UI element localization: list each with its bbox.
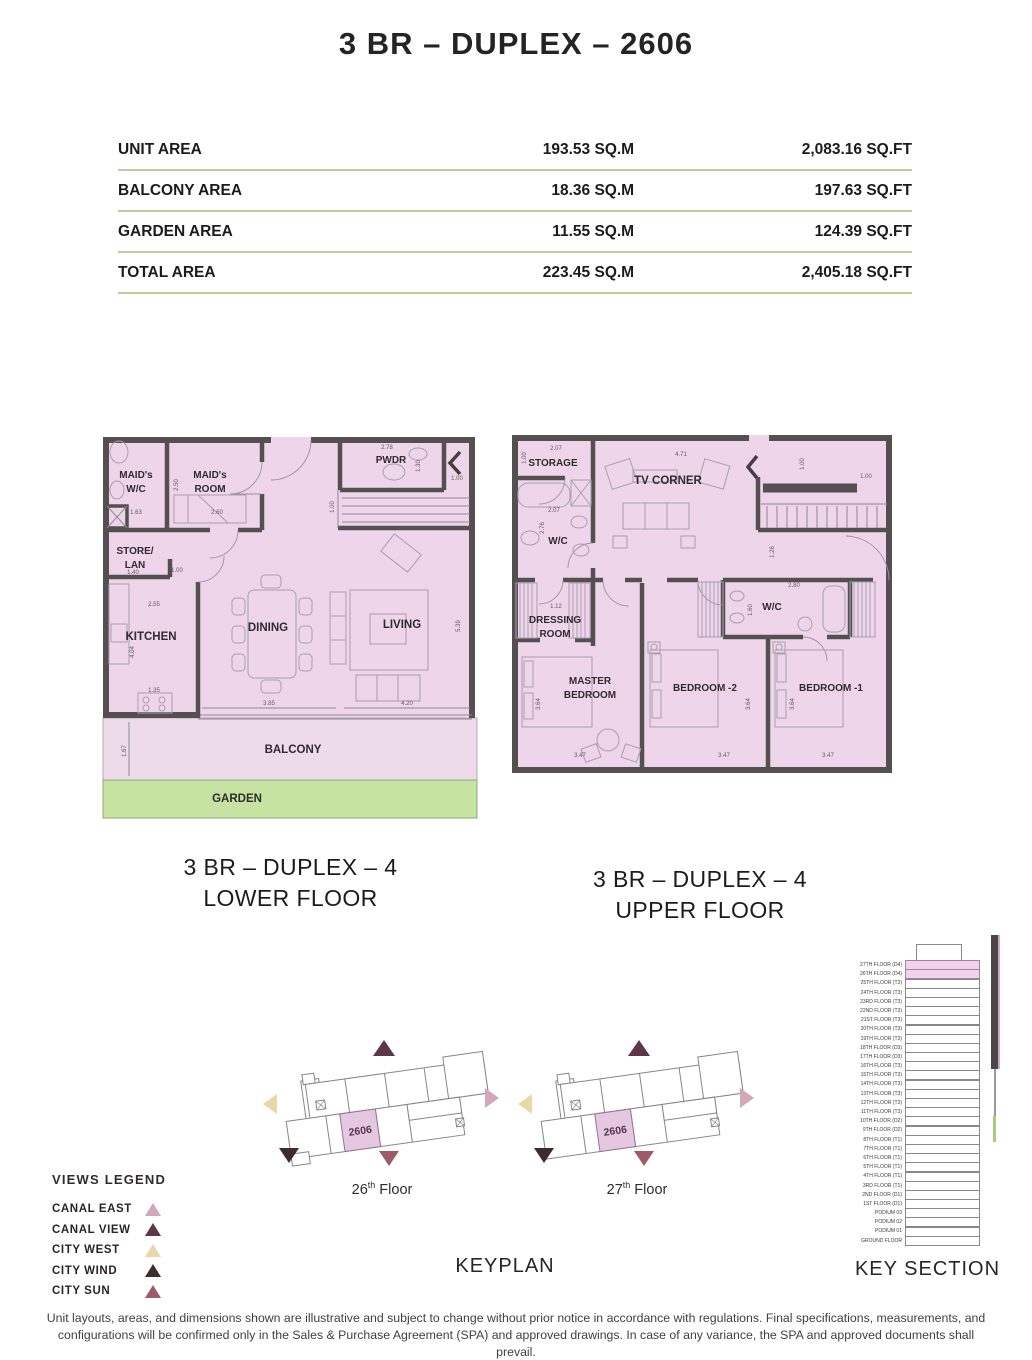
legend-item: CITY WIND [52,1261,242,1282]
table-row: GARDEN AREA 11.55 SQ.M 124.39 SQ.FT [118,212,912,253]
area-label: UNIT AREA [118,141,420,159]
view-direction-triangle [485,1088,499,1108]
area-label: GARDEN AREA [118,223,420,241]
keyplan-26th-floor: 2606 [257,1036,507,1176]
svg-text:STORAGE: STORAGE [528,458,578,469]
svg-text:1.00: 1.00 [171,568,183,574]
svg-text:3.64: 3.64 [746,698,752,710]
tower-section-bar [991,935,1000,1069]
svg-text:W/C: W/C [548,536,567,547]
svg-text:3.47: 3.47 [718,753,730,759]
key-section-roof [916,944,962,961]
table-row: UNIT AREA 193.53 SQ.M 2,083.16 SQ.FT [118,130,912,171]
svg-text:BEDROOM -1: BEDROOM -1 [799,683,863,694]
lower-plan-caption: 3 BR – DUPLEX – 4 LOWER FLOOR [98,852,483,914]
upper-plan-caption: 3 BR – DUPLEX – 4 UPPER FLOOR [505,864,895,926]
area-table: UNIT AREA 193.53 SQ.M 2,083.16 SQ.FT BAL… [118,130,912,294]
svg-text:1.40: 1.40 [127,570,139,576]
svg-text:1.12: 1.12 [550,604,562,610]
svg-text:1.67: 1.67 [122,745,128,757]
upper-floor-plan: STORAGE TV CORNER W/C DRESSING ROOM MAST… [505,428,895,778]
legend-item: CANAL VIEW [52,1220,242,1241]
svg-text:1.00: 1.00 [451,476,463,482]
svg-text:MASTER: MASTER [569,676,612,687]
svg-text:1.00: 1.00 [860,474,872,480]
views-legend: VIEWS LEGEND CANAL EAST CANAL VIEW CITY … [52,1172,242,1302]
keyplan-27th-caption: 27th Floor [512,1180,762,1198]
svg-text:1.30: 1.30 [416,460,422,472]
lower-floor-plan: MAID's W/C MAID's ROOM PWDR STORE/ LAN K… [98,432,483,822]
svg-text:3.85: 3.85 [263,701,275,707]
svg-text:3.47: 3.47 [822,753,834,759]
svg-text:DINING: DINING [248,622,288,634]
svg-text:1.00: 1.00 [800,458,806,470]
area-sqft: 2,405.18 SQ.FT [634,264,912,282]
svg-text:GARDEN: GARDEN [212,793,262,805]
area-label: TOTAL AREA [118,264,420,282]
view-direction-triangle [379,1151,399,1166]
legend-item: CITY WEST [52,1240,242,1261]
svg-text:3.64: 3.64 [790,698,796,710]
svg-text:BALCONY: BALCONY [265,744,322,756]
svg-text:1.35: 1.35 [148,688,160,694]
disclaimer-text: Unit layouts, areas, and dimensions show… [46,1310,986,1360]
svg-text:3.64: 3.64 [536,698,542,710]
view-direction-triangle [628,1040,650,1056]
table-row: BALCONY AREA 18.36 SQ.M 197.63 SQ.FT [118,171,912,212]
svg-text:2.60: 2.60 [211,510,223,516]
svg-text:W/C: W/C [762,602,781,613]
floor-plan-sheet: 3 BR – DUPLEX – 2606 UNIT AREA 193.53 SQ… [0,0,1032,1360]
key-section-diagram: 27TH FLOOR (D4) 26TH FLOOR (D4) 25TH FLO… [845,944,980,1246]
svg-text:TV CORNER: TV CORNER [634,475,702,487]
svg-text:2.07: 2.07 [548,508,560,514]
svg-text:1.60: 1.60 [748,604,754,616]
svg-text:2.76: 2.76 [540,522,546,534]
area-sqm: 223.45 SQ.M [420,264,634,282]
view-direction-triangle [518,1094,532,1114]
area-sqft: 197.63 SQ.FT [634,182,912,200]
svg-text:DRESSING: DRESSING [529,615,581,626]
tower-section-garden-level [993,1116,996,1142]
area-sqm: 18.36 SQ.M [420,182,634,200]
svg-text:4.71: 4.71 [675,452,687,458]
svg-text:MAID's: MAID's [119,470,153,481]
triangle-swatch-icon [144,1243,162,1258]
legend-item: CITY SUN [52,1281,242,1302]
svg-text:BEDROOM: BEDROOM [564,690,616,701]
page-title: 3 BR – DUPLEX – 2606 [0,26,1032,62]
svg-text:2.50: 2.50 [174,479,180,491]
svg-text:1.00: 1.00 [522,452,528,464]
svg-text:3.47: 3.47 [574,753,586,759]
views-legend-heading: VIEWS LEGEND [52,1172,242,1187]
svg-text:1.00: 1.00 [330,501,336,513]
svg-text:2.55: 2.55 [148,602,160,608]
view-direction-triangle [263,1094,277,1114]
svg-text:MAID's: MAID's [193,470,227,481]
svg-text:KITCHEN: KITCHEN [125,631,176,643]
keyplan-label: KEYPLAN [420,1255,590,1278]
legend-item: CANAL EAST [52,1199,242,1220]
svg-text:STORE/: STORE/ [116,546,153,557]
area-sqm: 193.53 SQ.M [420,141,634,159]
svg-text:4.20: 4.20 [401,701,413,707]
svg-text:BEDROOM -2: BEDROOM -2 [673,683,737,694]
keyplan-27th-floor: 2606 [512,1036,762,1176]
svg-text:2.80: 2.80 [788,583,800,589]
svg-text:5.39: 5.39 [456,620,462,632]
svg-text:2.78: 2.78 [381,445,393,451]
svg-text:ROOM: ROOM [194,484,225,495]
area-sqft: 124.39 SQ.FT [634,223,912,241]
view-direction-triangle [634,1151,654,1166]
svg-text:ROOM: ROOM [539,629,570,640]
view-direction-triangle [740,1088,754,1108]
table-row: TOTAL AREA 223.45 SQ.M 2,405.18 SQ.FT [118,253,912,294]
area-sqm: 11.55 SQ.M [420,223,634,241]
svg-text:1.63: 1.63 [130,510,142,516]
svg-text:W/C: W/C [126,484,145,495]
triangle-swatch-icon [144,1284,162,1299]
keyplan-26th-caption: 26th Floor [257,1180,507,1198]
svg-text:PWDR: PWDR [376,455,407,466]
svg-text:LIVING: LIVING [383,619,421,631]
key-section-label: KEY SECTION [845,1258,1010,1281]
area-sqft: 2,083.16 SQ.FT [634,141,912,159]
triangle-swatch-icon [144,1202,162,1217]
triangle-swatch-icon [144,1263,162,1278]
svg-text:2.07: 2.07 [550,446,562,452]
key-section-floor-row: GROUND FLOOR [845,1237,980,1246]
area-label: BALCONY AREA [118,182,420,200]
triangle-swatch-icon [144,1222,162,1237]
view-direction-triangle [373,1040,395,1056]
svg-text:4.04: 4.04 [130,646,136,658]
svg-text:1.26: 1.26 [770,546,776,558]
